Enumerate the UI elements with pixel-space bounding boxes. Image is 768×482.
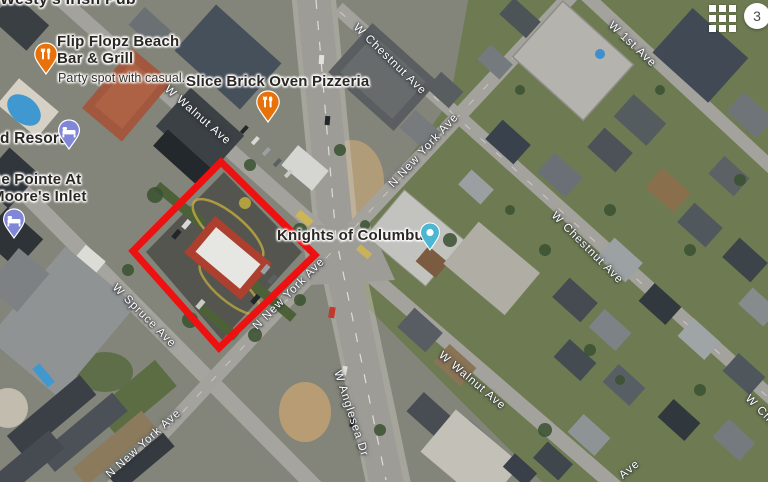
poi-label-flip-flopz-line2: Bar & Grill	[57, 50, 179, 67]
poi-label-pointe-moores-inlet[interactable]: he Pointe At Moore's Inlet	[0, 172, 87, 205]
poi-label-westys-irish-pub[interactable]: Westy's Irish Pub	[0, 0, 136, 8]
poi-label-resort[interactable]: d Resort	[0, 130, 64, 147]
place-pin-knights[interactable]	[419, 222, 441, 252]
poi-label-pointe-line2: Moore's Inlet	[0, 189, 87, 206]
map-canvas[interactable]: W Walnut Ave W Walnut Ave W Chestnut Ave…	[0, 0, 768, 482]
poi-label-flip-flopz-line1: Flip Flopz Beach	[57, 33, 179, 50]
poi-label-slice-pizzeria[interactable]: Slice Brick Oven Pizzeria	[186, 73, 369, 90]
poi-label-pointe-line1: he Pointe At	[0, 172, 87, 189]
restaurant-pin-slice-pizzeria[interactable]	[255, 90, 281, 124]
poi-label-knights-of-columbus[interactable]: Knights of Columbus	[277, 227, 432, 244]
lodging-pin-pointe[interactable]	[2, 208, 26, 240]
lodging-pin-resort[interactable]	[57, 119, 81, 151]
pin-dot-icon	[426, 229, 433, 236]
apps-grid-icon[interactable]	[709, 5, 738, 34]
poi-subtitle-flip-flopz: Party spot with casual...	[58, 70, 193, 87]
poi-label-flip-flopz[interactable]: Flip Flopz Beach Bar & Grill	[57, 33, 179, 67]
notification-count-badge[interactable]: 3	[744, 3, 768, 29]
restaurant-pin-flip-flopz[interactable]	[33, 42, 59, 76]
